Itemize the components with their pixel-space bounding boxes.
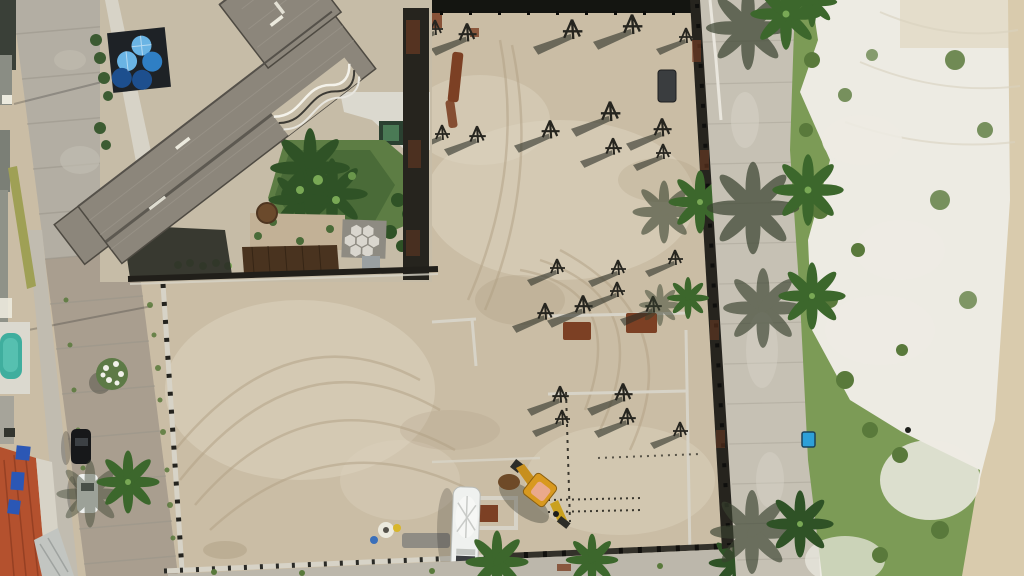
water-tank-platform (107, 27, 171, 93)
swimming-pool (0, 322, 30, 394)
blue-bin (802, 432, 815, 447)
brown-roof-annex (242, 245, 339, 274)
small-dark-object (4, 428, 15, 437)
scaffold-band (428, 0, 694, 13)
yellow-drum (393, 524, 401, 532)
site-container (658, 70, 676, 102)
blue-tarp (7, 499, 21, 515)
thatch-umbrella (257, 203, 277, 223)
blue-tarp (15, 445, 30, 460)
property-east-wall (403, 8, 429, 280)
black-car (71, 429, 91, 464)
dug-earth-heap (498, 474, 520, 490)
blue-tarp (10, 472, 24, 491)
aerial-photo-stage (0, 0, 1024, 576)
hex-paver-patio (341, 219, 386, 259)
blue-drum (370, 536, 378, 544)
aerial-photo (0, 0, 1024, 576)
debris-dot (905, 427, 911, 433)
